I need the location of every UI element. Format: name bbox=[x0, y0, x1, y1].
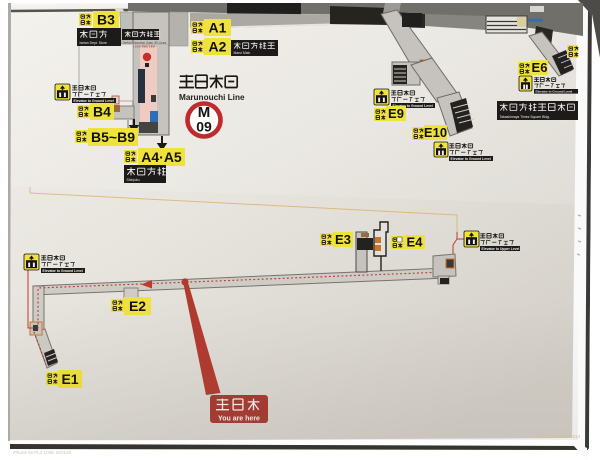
svg-text:Isetan Dept. Store: Isetan Dept. Store bbox=[80, 41, 107, 45]
svg-text:Elevator to Upper Level: Elevator to Upper Level bbox=[482, 247, 520, 251]
svg-text:Elevator to Ground Level: Elevator to Ground Level bbox=[43, 269, 83, 273]
svg-text:Shinjuku: Shinjuku bbox=[127, 178, 140, 182]
svg-text:A4·A5: A4·A5 bbox=[141, 149, 182, 165]
svg-text:Elevator to Ground Level: Elevator to Ground Level bbox=[451, 157, 491, 161]
svg-text:E9: E9 bbox=[388, 106, 404, 121]
svg-text:E4: E4 bbox=[407, 235, 424, 250]
svg-text:Marui Main: Marui Main bbox=[234, 51, 251, 55]
svg-text:A2: A2 bbox=[209, 39, 227, 55]
svg-text:iPhone 5s PL2 1/30s ISO125: iPhone 5s PL2 1/30s ISO125 bbox=[13, 450, 72, 455]
svg-text:B5~B9: B5~B9 bbox=[91, 129, 135, 145]
svg-text:Elevator to Ground Level: Elevator to Ground Level bbox=[536, 90, 573, 94]
svg-text:09: 09 bbox=[196, 119, 212, 135]
svg-text:Elevator to Ground Level: Elevator to Ground Level bbox=[74, 99, 114, 103]
svg-text:E10: E10 bbox=[424, 125, 447, 140]
svg-text:A1: A1 bbox=[209, 20, 227, 36]
svg-text:E6: E6 bbox=[532, 60, 548, 75]
svg-text:E3: E3 bbox=[335, 232, 351, 247]
svg-text:Marunouchi Line: Marunouchi Line bbox=[179, 93, 245, 102]
svg-text:P8140062 14/08/2014: P8140062 14/08/2014 bbox=[536, 434, 581, 439]
svg-text:B3: B3 bbox=[97, 12, 115, 28]
svg-text:Takashimaya Times Square Bldg.: Takashimaya Times Square Bldg. bbox=[500, 115, 550, 119]
svg-text:B4: B4 bbox=[93, 104, 111, 120]
